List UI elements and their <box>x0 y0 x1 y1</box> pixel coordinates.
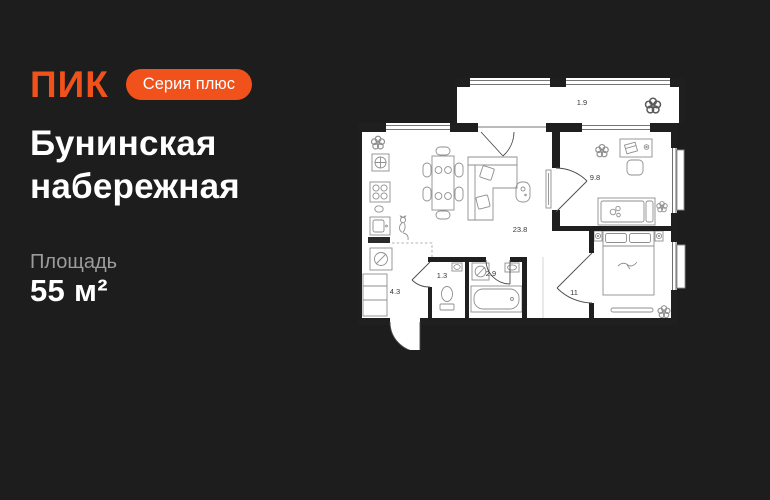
info-panel: ПИК Серия плюс Бунинская набережная Площ… <box>30 0 342 500</box>
room-label-wc: 1.3 <box>437 271 447 280</box>
area-label: Площадь <box>30 251 117 274</box>
brand-row: ПИК Серия плюс <box>30 66 252 103</box>
pik-logo: ПИК <box>30 66 109 103</box>
room-label-study: 9.8 <box>590 173 600 182</box>
room-label-living: 23.8 <box>513 225 528 234</box>
room-label-bathroom: 2.9 <box>486 269 496 278</box>
ad-banner: ПИК Серия плюс Бунинская набережная Площ… <box>0 0 770 500</box>
plan-floor <box>358 78 685 350</box>
room-label-balcony: 1.9 <box>577 98 587 107</box>
series-plus-badge-label: Серия плюс <box>143 75 235 94</box>
series-plus-badge: Серия плюс <box>126 69 252 100</box>
room-label-bedroom: 11 <box>570 288 578 297</box>
project-title: Бунинская набережная <box>30 122 320 208</box>
floor-plan-graphic: 1.9 9.8 23.8 11 1.3 2.9 4.3 <box>350 60 690 350</box>
area-value: 55 м² <box>30 273 108 309</box>
room-label-hallway: 4.3 <box>390 287 400 296</box>
